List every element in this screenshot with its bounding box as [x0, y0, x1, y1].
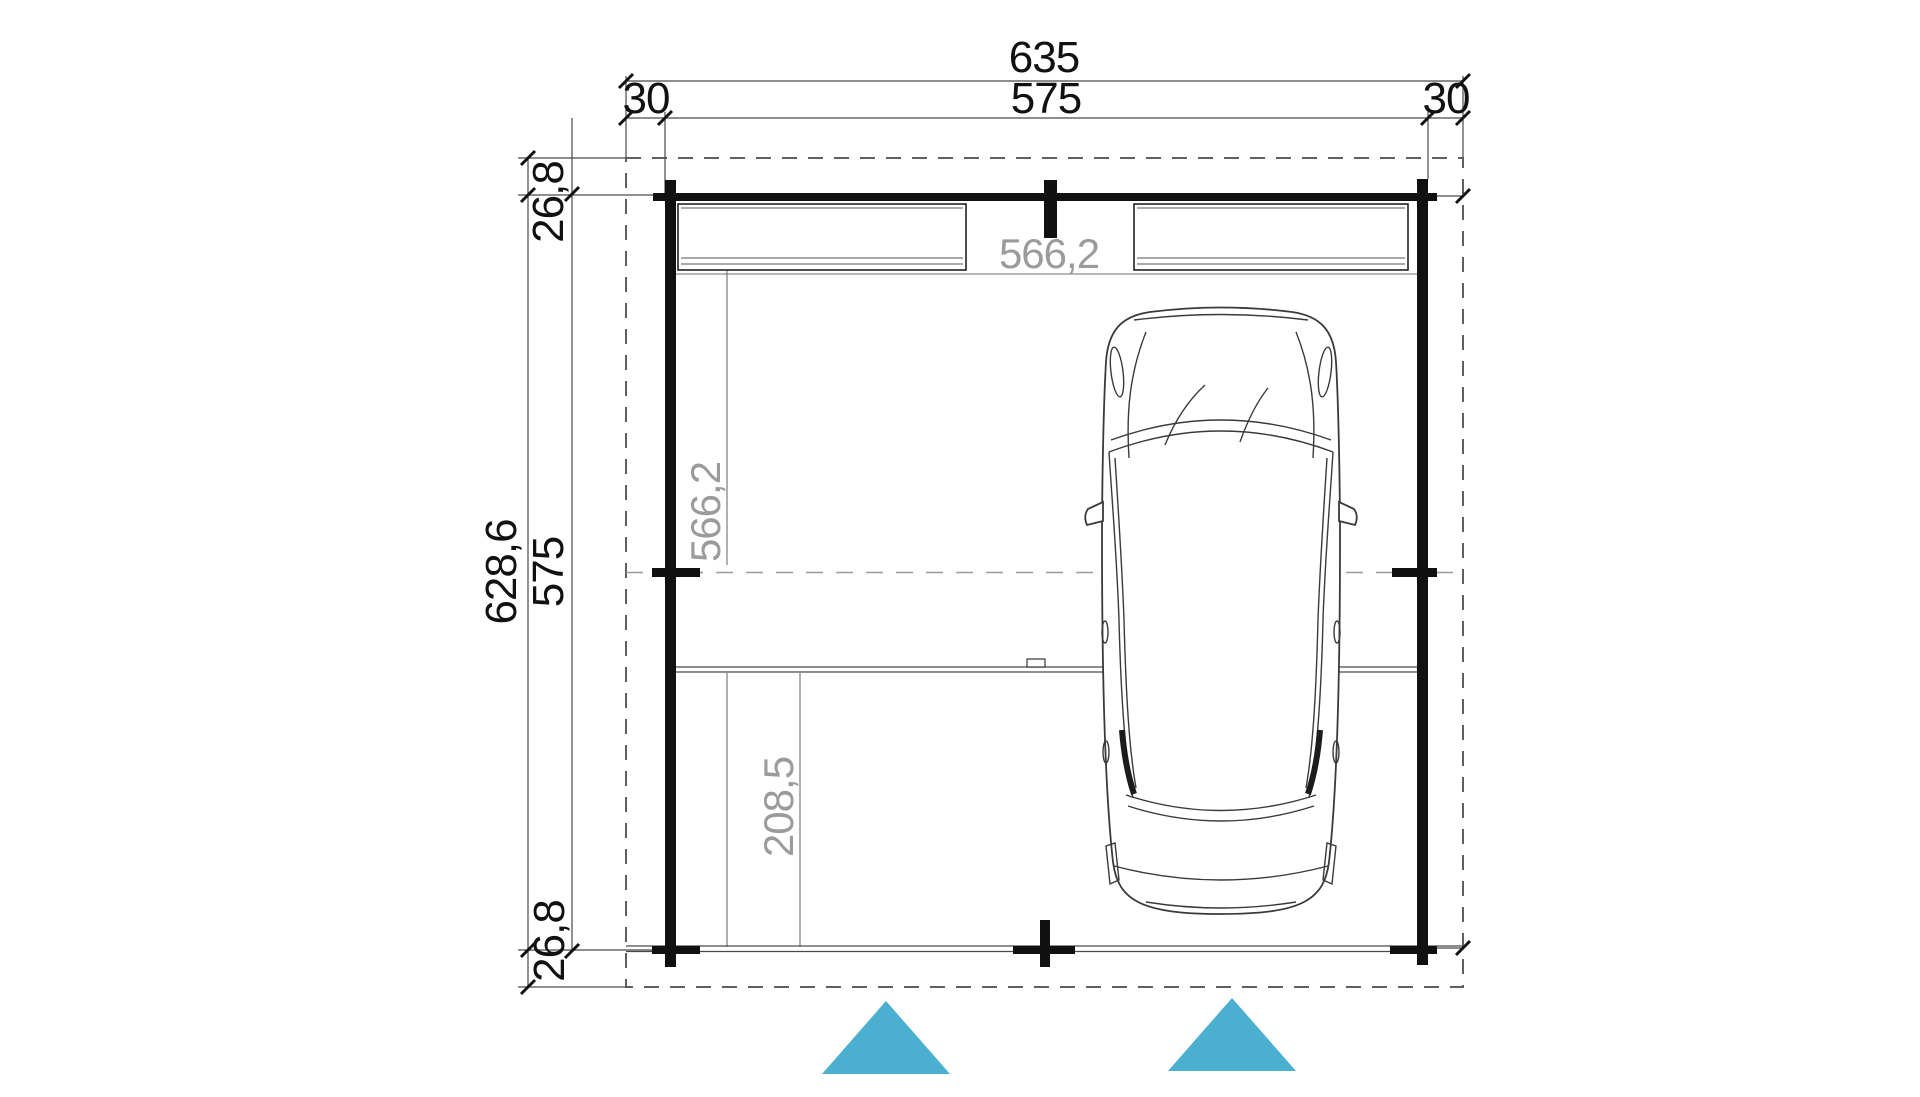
- post-mid-right: [1392, 568, 1437, 577]
- separator-latch: [1027, 659, 1045, 667]
- dim-label-right-overhang: 30: [1423, 77, 1470, 121]
- dim-label-rear-section: 208,5: [758, 757, 800, 857]
- post-bottom-left: [652, 946, 700, 954]
- floor-plan-canvas: 635 30 575 30 26,8 628,6 575 26,8 566,2 …: [0, 0, 1920, 1097]
- post-bottom-middle-stem: [1040, 920, 1050, 967]
- car-top-view: [1085, 308, 1357, 915]
- car-mirror-right: [1339, 502, 1357, 525]
- dim-label-wall-span-left: 575: [527, 537, 571, 607]
- car-body-outline: [1102, 308, 1340, 915]
- dim-label-wall-span-top: 575: [1011, 77, 1081, 121]
- entrance-arrow-left: [822, 1001, 950, 1074]
- post-bottom-right: [1390, 946, 1437, 954]
- window-left: [678, 204, 966, 270]
- entrance-arrow-right: [1168, 998, 1296, 1071]
- dim-label-interior-width: 566,2: [999, 233, 1099, 275]
- post-mid-left: [652, 568, 700, 577]
- dim-label-overall-depth: 628,6: [480, 519, 524, 624]
- car-mirror-left: [1085, 502, 1103, 525]
- dim-label-bottom-overhang-left: 26,8: [528, 900, 572, 982]
- floor-plan-linework: [0, 0, 1920, 1097]
- dim-label-top-overhang-left: 26,8: [527, 161, 571, 243]
- dim-label-left-overhang: 30: [623, 77, 670, 121]
- dim-label-interior-depth: 566,2: [685, 462, 727, 562]
- window-right: [1134, 204, 1408, 270]
